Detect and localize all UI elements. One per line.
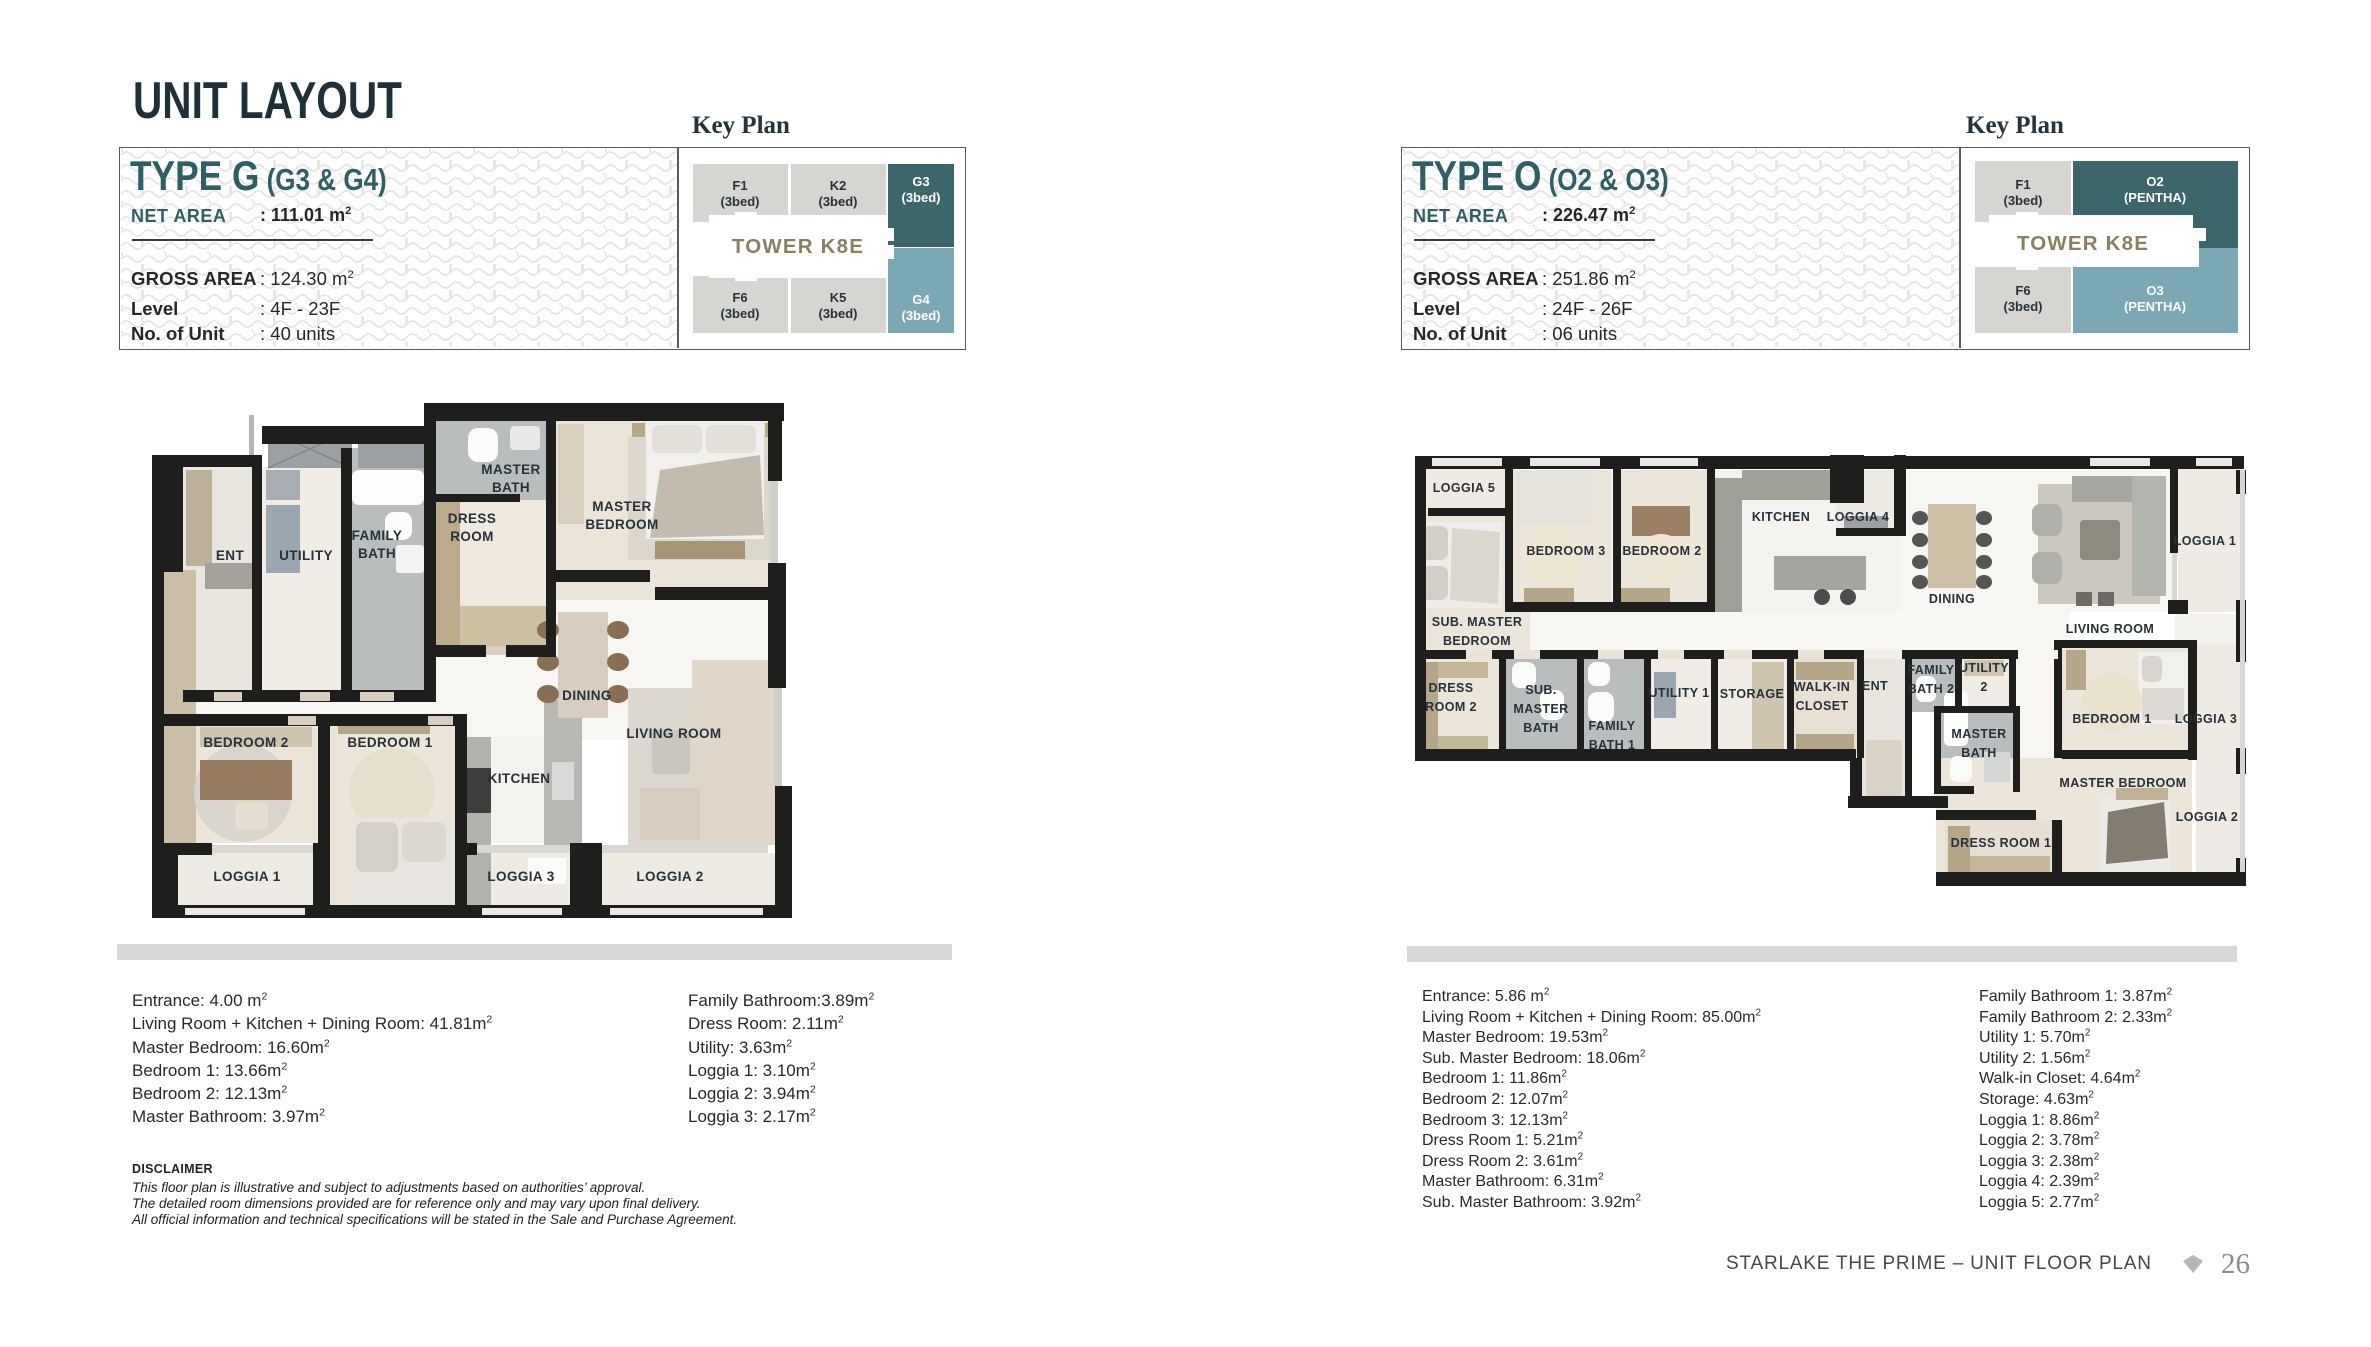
svg-text:(3bed): (3bed) (2004, 193, 2043, 208)
svg-text:KITCHEN: KITCHEN (1752, 510, 1810, 524)
svg-text:(3bed): (3bed) (721, 194, 760, 209)
svg-text:BATH: BATH (1523, 721, 1558, 735)
svg-text:FAMILY: FAMILY (1588, 719, 1635, 733)
svg-text:LOGGIA 2: LOGGIA 2 (2176, 810, 2238, 824)
svg-text:ENT: ENT (1862, 679, 1888, 693)
svg-text:FAMILY: FAMILY (352, 528, 403, 543)
svg-text:BATH 1: BATH 1 (1589, 738, 1636, 752)
svg-text:BATH: BATH (492, 480, 530, 495)
svg-text:LIVING ROOM: LIVING ROOM (2066, 622, 2154, 636)
svg-text:DINING: DINING (1929, 592, 1975, 606)
svg-text:MASTER BEDROOM: MASTER BEDROOM (2059, 776, 2186, 790)
svg-text:(3bed): (3bed) (902, 190, 941, 205)
svg-text:BEDROOM 2: BEDROOM 2 (1622, 544, 1701, 558)
svg-text:LOGGIA 2: LOGGIA 2 (636, 869, 703, 884)
svg-text:MASTER: MASTER (592, 499, 651, 514)
svg-text:MASTER: MASTER (1951, 727, 2006, 741)
svg-text:2: 2 (1980, 680, 1987, 694)
svg-text:BATH 2: BATH 2 (1908, 682, 1955, 696)
svg-text:G3: G3 (912, 174, 929, 189)
svg-text:BATH: BATH (1961, 746, 1996, 760)
svg-text:LOGGIA 5: LOGGIA 5 (1433, 481, 1495, 495)
svg-text:DINING: DINING (562, 688, 612, 703)
svg-text:BEDROOM 1: BEDROOM 1 (2072, 712, 2151, 726)
svg-text:STORAGE: STORAGE (1720, 687, 1784, 701)
svg-text:F6: F6 (2015, 283, 2030, 298)
svg-text:LOGGIA 4: LOGGIA 4 (1827, 510, 1889, 524)
svg-text:F1: F1 (2015, 177, 2030, 192)
svg-text:DRESS: DRESS (1428, 681, 1473, 695)
svg-text:KITCHEN: KITCHEN (488, 771, 551, 786)
svg-text:BEDROOM 1: BEDROOM 1 (347, 735, 432, 750)
svg-text:SUB.: SUB. (1525, 683, 1556, 697)
svg-text:LIVING ROOM: LIVING ROOM (626, 726, 721, 741)
svg-text:(3bed): (3bed) (2004, 299, 2043, 314)
svg-text:TOWER K8E: TOWER K8E (732, 235, 864, 258)
svg-text:F6: F6 (732, 290, 747, 305)
svg-text:UTILITY: UTILITY (279, 548, 333, 563)
svg-text:K2: K2 (830, 178, 847, 193)
svg-text:CLOSET: CLOSET (1795, 699, 1848, 713)
svg-text:DRESS: DRESS (448, 511, 497, 526)
svg-text:ROOM: ROOM (450, 529, 494, 544)
svg-text:BEDROOM: BEDROOM (585, 517, 658, 532)
svg-text:O3: O3 (2146, 283, 2163, 298)
svg-text:BEDROOM 3: BEDROOM 3 (1526, 544, 1605, 558)
svg-text:BEDROOM: BEDROOM (1443, 634, 1511, 648)
svg-text:G4: G4 (912, 292, 930, 307)
svg-text:LOGGIA 3: LOGGIA 3 (2175, 712, 2237, 726)
svg-text:BEDROOM 2: BEDROOM 2 (203, 735, 288, 750)
svg-text:TOWER K8E: TOWER K8E (2017, 232, 2149, 255)
svg-text:DRESS ROOM 1: DRESS ROOM 1 (1951, 836, 2052, 850)
svg-text:MASTER: MASTER (481, 462, 540, 477)
svg-text:(3bed): (3bed) (902, 308, 941, 323)
svg-text:WALK-IN: WALK-IN (1794, 680, 1850, 694)
svg-text:ENT: ENT (216, 548, 245, 563)
svg-text:F1: F1 (732, 178, 747, 193)
svg-text:(3bed): (3bed) (819, 306, 858, 321)
svg-text:FAMILY: FAMILY (1907, 663, 1954, 677)
svg-text:LOGGIA 3: LOGGIA 3 (487, 869, 554, 884)
svg-text:(3bed): (3bed) (819, 194, 858, 209)
svg-text:(PENTHA): (PENTHA) (2124, 190, 2186, 205)
svg-text:ROOM 2: ROOM 2 (1425, 700, 1477, 714)
svg-text:(PENTHA): (PENTHA) (2124, 299, 2186, 314)
svg-text:LOGGIA 1: LOGGIA 1 (2174, 534, 2236, 548)
svg-text:MASTER: MASTER (1513, 702, 1568, 716)
svg-text:K5: K5 (830, 290, 847, 305)
svg-text:UTILITY 1: UTILITY 1 (1648, 686, 1709, 700)
svg-text:(3bed): (3bed) (721, 306, 760, 321)
svg-text:LOGGIA 1: LOGGIA 1 (213, 869, 280, 884)
svg-text:O2: O2 (2146, 174, 2163, 189)
svg-text:SUB. MASTER: SUB. MASTER (1432, 615, 1523, 629)
svg-text:UTILITY: UTILITY (1959, 661, 2009, 675)
svg-text:BATH: BATH (358, 546, 396, 561)
